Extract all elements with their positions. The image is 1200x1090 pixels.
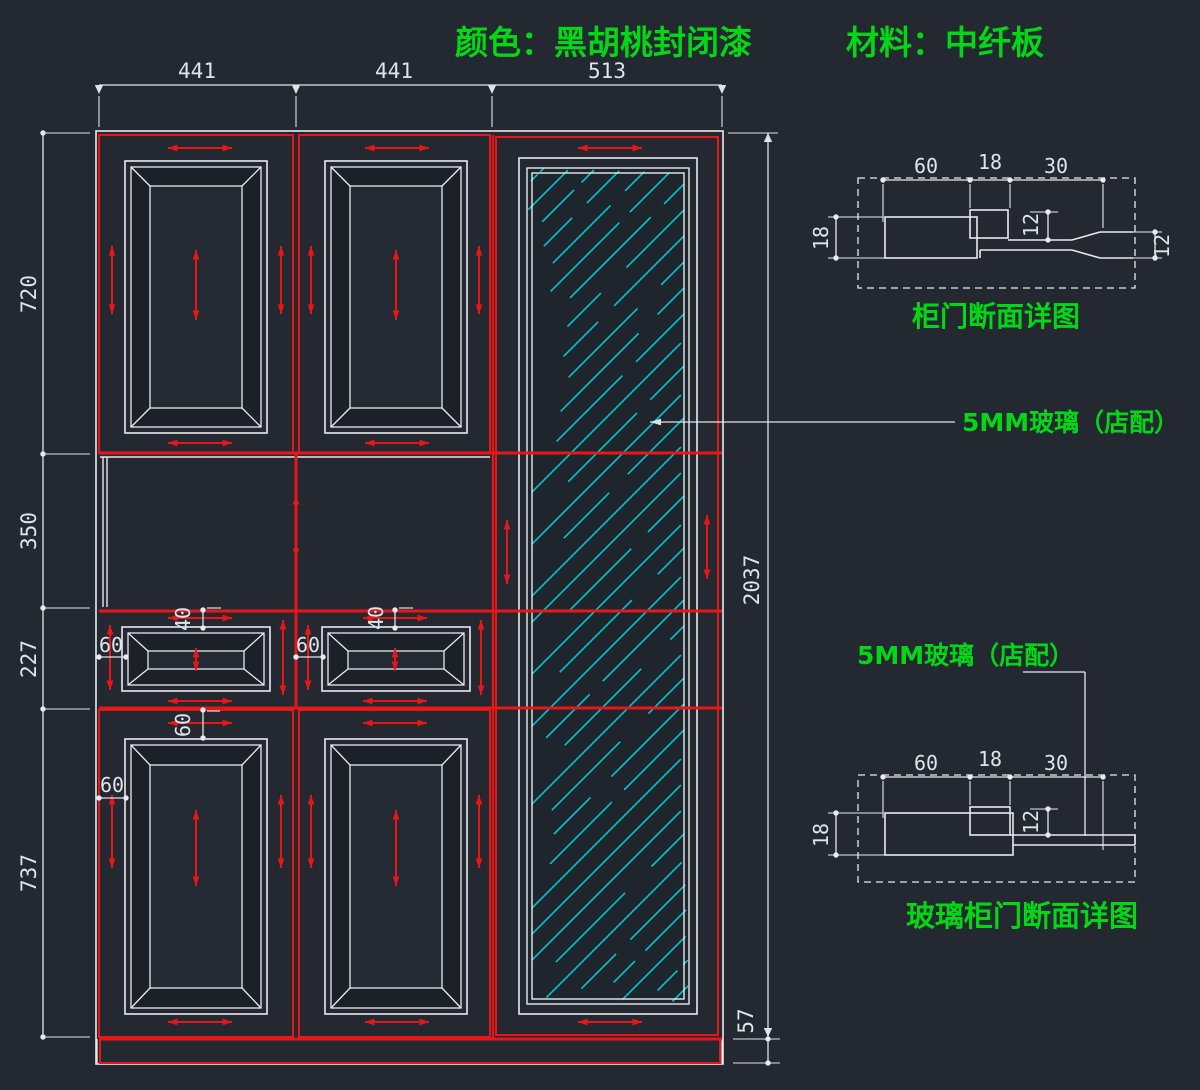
glass-note-main: 5MM玻璃（店配）: [962, 408, 1179, 437]
detail1-dim-groove: 12: [1019, 213, 1043, 237]
dim-height-drawers: 227: [17, 640, 41, 678]
detail2-dim-60: 60: [914, 751, 938, 775]
dim-height-open-shelf: 350: [17, 512, 41, 550]
detail1-dim-thickness: 18: [809, 226, 833, 250]
detail2-dim-18: 18: [978, 747, 1002, 771]
dim-drawer-rail-right: 40: [364, 606, 388, 630]
dim-plinth-height: 57: [734, 1008, 758, 1033]
detail1-dim-60: 60: [914, 154, 938, 178]
glass-note-detail: 5MM玻璃（店配）: [857, 641, 1074, 670]
dim-width-glass: 513: [588, 59, 626, 83]
detail1-dim-30: 30: [1044, 154, 1068, 178]
dim-bottom-door-rail: 60: [171, 713, 195, 737]
detail2-dim-thickness: 18: [809, 823, 833, 847]
detail1-dim-18: 18: [978, 150, 1002, 174]
section-detail-profiles: [828, 177, 1162, 882]
dim-drawer-rail-left: 40: [171, 607, 195, 631]
dim-drawer-stile-right: 60: [296, 633, 320, 657]
cabinet-cad-drawing: 颜色：黑胡桃封闭漆 材料：中纤板 441 441 513 720 350 227…: [0, 0, 1200, 1090]
dim-height-top-doors: 720: [17, 275, 41, 313]
detail2-dim-30: 30: [1044, 751, 1068, 775]
dim-bottom-door-stile: 60: [100, 773, 124, 797]
detail1-dim-edge: 12: [1150, 234, 1174, 258]
panel-fills: [128, 167, 689, 1008]
dim-total-height: 2037: [740, 555, 764, 606]
cad-viewport: 颜色：黑胡桃封闭漆 材料：中纤板 441 441 513 720 350 227…: [0, 0, 1200, 1090]
dim-drawer-stile-left: 60: [99, 633, 123, 657]
detail2-dim-groove: 12: [1019, 810, 1043, 834]
dim-width-middle: 441: [375, 59, 413, 83]
detail2-title: 玻璃柜门断面详图: [906, 899, 1138, 933]
dim-width-left: 441: [178, 59, 216, 83]
color-spec-label: 颜色：黑胡桃封闭漆: [455, 23, 752, 62]
dim-height-bottom-doors: 737: [17, 854, 41, 892]
detail1-title: 柜门断面详图: [912, 300, 1080, 333]
material-spec-label: 材料：中纤板: [846, 23, 1044, 62]
